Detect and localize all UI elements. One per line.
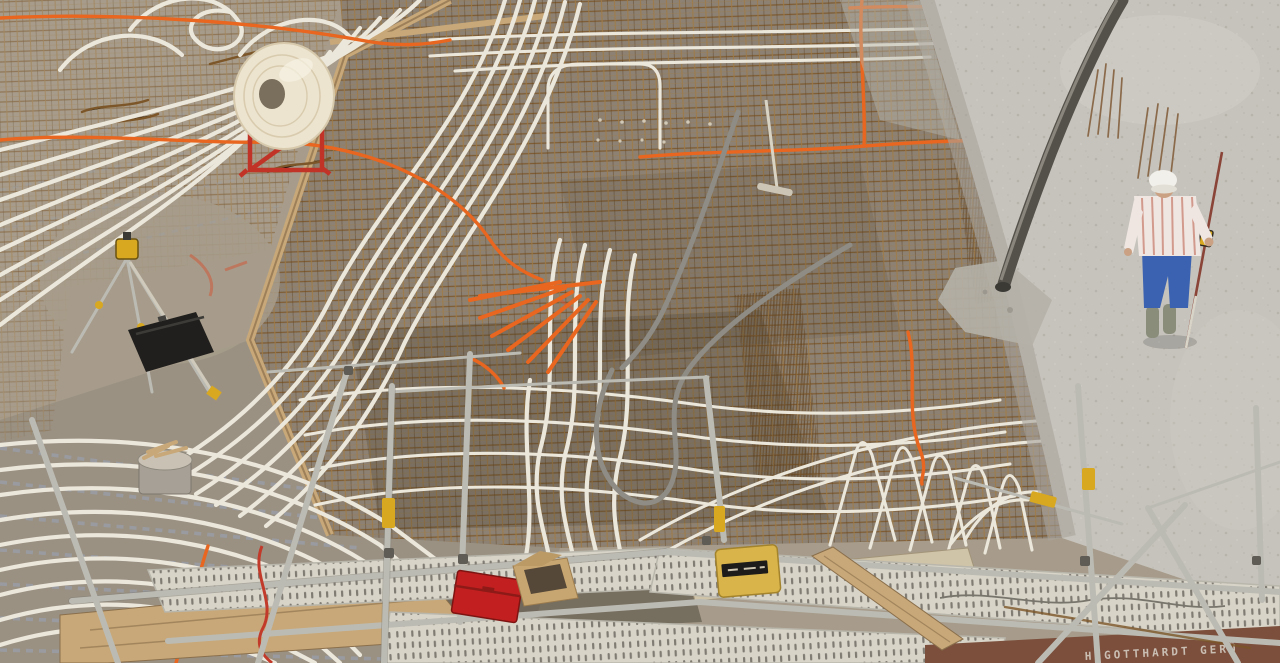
photo-canvas: H.GOTTHARDT GERÜ <box>0 0 1280 663</box>
worker-boots <box>1146 306 1159 338</box>
construction-site-photo: H.GOTTHARDT GERÜ <box>0 0 1280 663</box>
yellow-case <box>715 544 781 597</box>
pipe-coil <box>234 43 334 149</box>
red-toolbox <box>451 570 523 623</box>
laser-level <box>116 239 138 259</box>
